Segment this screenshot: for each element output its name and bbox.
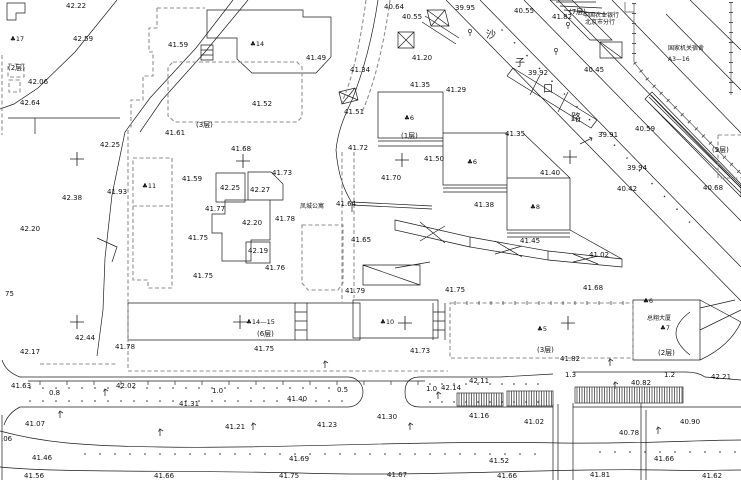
elevation-label: 40.45 — [584, 66, 604, 74]
tree-dot — [309, 453, 311, 455]
tree-dot — [414, 453, 416, 455]
tree-dot — [302, 387, 304, 389]
lamp-post-icon — [609, 359, 614, 366]
elevation-label: 41.62 — [702, 472, 722, 480]
elevation-label: 40.64 — [384, 3, 405, 11]
elevation-label: 41.68 — [231, 145, 251, 153]
elevation-label: 41.75 — [254, 345, 274, 353]
place-name-label: 北京市分行 — [585, 18, 615, 26]
tree-dot — [237, 400, 239, 402]
elevation-label: 40.68 — [703, 184, 723, 192]
tree-dot — [513, 383, 515, 385]
elevation-label: 41.66 — [654, 455, 675, 463]
place-name-label: 凤城公寓 — [300, 202, 324, 210]
elevation-label: 41.40 — [287, 395, 307, 403]
elevation-label: 41.73 — [272, 169, 292, 177]
floor-count-label: (2层) — [658, 349, 675, 357]
terrace-ramps — [352, 202, 622, 285]
tree-dot — [55, 400, 57, 402]
tree-dot — [689, 221, 691, 223]
place-name-label: A3—16 — [668, 56, 690, 63]
tree-dot — [689, 451, 691, 453]
elevation-label: 41.49 — [306, 54, 326, 62]
building-number-label: ♣14—15 — [246, 318, 275, 326]
tree-dot — [189, 453, 191, 455]
building-number-label: ♣6 — [404, 114, 414, 122]
tree-dot — [328, 387, 330, 389]
elevation-label: 42.21 — [711, 373, 731, 381]
tree-dot — [664, 196, 666, 198]
elevation-label: 41.45 — [520, 237, 540, 245]
elevation-label: 41.70 — [381, 174, 401, 182]
tree-dot — [198, 387, 200, 389]
elevation-label: 41.65 — [351, 236, 371, 244]
north-buildings — [7, 3, 331, 73]
elevation-label: 41.66 — [497, 472, 518, 480]
elevation-label: 40.78 — [619, 429, 639, 437]
survey-cross-mark — [233, 315, 247, 329]
site-plan-drawing: 42.2242.5942.0642.6441.5941.4940.6440.55… — [0, 0, 741, 480]
tree-dot — [504, 453, 506, 455]
tree-dot — [146, 387, 148, 389]
lamp-post-icon — [657, 427, 662, 434]
survey-cross-mark — [395, 153, 409, 167]
shrub-icon — [554, 48, 557, 51]
elevation-label: 41.72 — [348, 144, 368, 152]
tree-dot — [489, 401, 491, 403]
road-width-label: 1.2 — [664, 371, 675, 379]
elevation-label: 41.61 — [165, 129, 185, 137]
tree-dot — [219, 453, 221, 455]
elevation-label: 41.78 — [275, 215, 295, 223]
tree-dot — [324, 453, 326, 455]
elevation-label: 42.11 — [469, 377, 489, 385]
elevation-label: 41.21 — [225, 423, 245, 431]
tree-dot — [576, 106, 578, 108]
floor-count-label: (6层) — [257, 330, 274, 338]
elevation-label: 42.17 — [20, 348, 40, 356]
elevation-label: 41.40 — [540, 169, 560, 177]
lamp-post-icon — [324, 361, 329, 368]
place-name-label: 中国农业银行 — [583, 11, 619, 19]
elevation-label: 42.19 — [248, 247, 268, 255]
elevation-label: 41.35 — [410, 81, 430, 89]
road-name-char: 路 — [571, 111, 581, 124]
elevation-label: 41.76 — [265, 264, 286, 272]
elevation-label: 41.73 — [410, 347, 430, 355]
elevation-label: 41.38 — [474, 201, 494, 209]
tree-dot — [341, 400, 343, 402]
elevation-label: 42.38 — [62, 194, 82, 202]
tree-dot — [81, 387, 83, 389]
tree-dot — [704, 451, 706, 453]
building-number-label: ♣17 — [10, 35, 24, 43]
tree-dot — [174, 453, 176, 455]
tree-dot — [674, 451, 676, 453]
tree-dot — [68, 387, 70, 389]
tree-dot — [328, 400, 330, 402]
lamp-post-icon — [437, 392, 442, 399]
floor-count-label: (3层) — [537, 346, 554, 354]
elevation-label: 41.82 — [560, 355, 580, 363]
elevation-label: 41.63 — [11, 382, 31, 390]
tree-dot — [429, 453, 431, 455]
elevation-label: 41.81 — [590, 471, 610, 479]
elevation-label: 41.75 — [193, 272, 213, 280]
tree-dot — [234, 453, 236, 455]
tree-dot — [264, 453, 266, 455]
elevation-label: 41.79 — [345, 287, 365, 295]
shrub-icon — [468, 29, 471, 32]
tree-dot — [99, 453, 101, 455]
elevation-label: 41.35 — [505, 130, 525, 138]
tree-dot — [94, 387, 96, 389]
road-name-char: 口 — [543, 84, 553, 95]
elevation-label: 42.02 — [116, 382, 136, 390]
tree-dot — [159, 453, 161, 455]
tree-dot — [249, 453, 251, 455]
elevation-label: 41.64 — [336, 200, 357, 208]
elevation-label: 39.91 — [598, 131, 618, 139]
tree-dot — [513, 401, 515, 403]
tree-dot — [614, 451, 616, 453]
elevation-label: .06 — [1, 435, 13, 443]
tree-dot — [429, 401, 431, 403]
lamp-post-icon — [409, 423, 414, 430]
elevation-label: 40.55 — [402, 13, 422, 21]
tree-dot — [120, 400, 122, 402]
tree-dot — [211, 400, 213, 402]
tree-dot — [644, 451, 646, 453]
floor-count-label: (2层) — [8, 64, 25, 72]
elevation-label: 42.44 — [75, 334, 96, 342]
road-median-band — [645, 92, 741, 197]
elevation-label: 41.07 — [25, 420, 45, 428]
elevation-label: 42.22 — [66, 2, 86, 10]
tree-dot — [474, 453, 476, 455]
elevation-label: 75 — [5, 290, 14, 298]
tree-dot — [384, 453, 386, 455]
tree-dot — [525, 401, 527, 403]
elevation-label: 40.55 — [514, 7, 534, 15]
tree-dot — [42, 387, 44, 389]
road-width-label: 1.0 — [212, 387, 223, 395]
tree-dot — [453, 401, 455, 403]
tree-dot — [369, 453, 371, 455]
tree-dot — [224, 400, 226, 402]
road-width-label: 1.3 — [565, 371, 576, 379]
building-number-label: ♣5 — [537, 325, 547, 333]
road-name-char: 子 — [515, 57, 525, 69]
tree-dot — [159, 400, 161, 402]
road-width-label: 0.5 — [337, 386, 348, 394]
survey-cross-mark — [561, 316, 575, 330]
tree-dot — [185, 387, 187, 389]
survey-cross-mark — [70, 152, 84, 166]
tree-dot — [159, 387, 161, 389]
road-width-label: 0.8 — [49, 389, 60, 397]
building-number-label: ♣11 — [142, 182, 156, 190]
tree-dot — [526, 55, 528, 57]
tree-dot — [172, 387, 174, 389]
elevation-label: 41.20 — [412, 54, 432, 62]
tree-dot — [81, 400, 83, 402]
tree-dot — [114, 453, 116, 455]
elevation-label: 41.67 — [387, 471, 407, 479]
tree-dot — [107, 387, 109, 389]
tree-dot — [399, 453, 401, 455]
elevation-label: 41.59 — [182, 175, 202, 183]
elevation-label: 41.46 — [32, 454, 53, 462]
tree-dot — [441, 401, 443, 403]
elevation-label: 41.34 — [350, 66, 371, 74]
building-number-label: ♣7 — [660, 324, 670, 332]
elevation-label: 39.95 — [455, 4, 475, 12]
survey-cross-mark — [70, 315, 84, 329]
road-width-label: 1.0 — [426, 385, 437, 393]
elevation-label: 41.31 — [179, 400, 199, 408]
tree-dot — [734, 451, 736, 453]
tree-dot — [599, 451, 601, 453]
elevation-label: 41.78 — [115, 343, 135, 351]
tree-dot — [514, 42, 516, 44]
tower-building-7 — [633, 300, 741, 360]
tree-dot — [589, 119, 591, 121]
tree-dot — [629, 451, 631, 453]
elevation-label: 41.75 — [279, 472, 299, 480]
south-row-buildings — [128, 300, 445, 340]
floor-count-label: (3层) — [196, 121, 213, 129]
building-number-label: ♣10 — [380, 318, 394, 326]
elevation-label: 41.51 — [344, 108, 364, 116]
tree-dot — [129, 453, 131, 455]
label-layer: 42.2242.5942.0642.6441.5941.4940.6440.55… — [1, 2, 731, 480]
tree-dot — [537, 383, 539, 385]
elevation-label: 40.59 — [635, 125, 655, 133]
tree-dot — [519, 453, 521, 455]
tree-dot — [315, 387, 317, 389]
tree-dot — [276, 387, 278, 389]
tree-dot — [525, 383, 527, 385]
elevation-label: 41.68 — [583, 284, 603, 292]
shrub-icon — [566, 22, 569, 25]
elevation-label: 42.27 — [250, 186, 270, 194]
building-number-label: ♣14 — [250, 40, 264, 48]
road-name-char: 沙 — [486, 29, 496, 41]
survey-cross-mark — [563, 150, 577, 164]
tree-dot — [289, 387, 291, 389]
building-number-label: ♣6 — [467, 158, 477, 166]
floor-count-label: (5层) — [712, 146, 729, 154]
tree-dot — [651, 183, 653, 185]
elevation-label: 41.29 — [446, 86, 466, 94]
tree-dot — [29, 400, 31, 402]
tree-dot — [551, 80, 553, 82]
elevation-label: 41.69 — [289, 455, 309, 463]
elevation-label: 42.20 — [20, 225, 40, 233]
tree-dot — [133, 400, 135, 402]
tree-dot — [444, 453, 446, 455]
tree-dot — [354, 453, 356, 455]
tree-dot — [339, 453, 341, 455]
lamp-post-icon — [59, 411, 64, 418]
tree-dot — [501, 29, 503, 31]
tree-dot — [534, 453, 536, 455]
elevation-label: 41.50 — [424, 155, 444, 163]
elevation-label: 41.16 — [469, 412, 490, 420]
lamp-post-icon — [159, 429, 164, 436]
tree-dot — [94, 400, 96, 402]
tree-dot — [501, 401, 503, 403]
elevation-label: 41.59 — [168, 41, 188, 49]
building-number-label: ♣8 — [530, 203, 540, 211]
tree-dot — [224, 387, 226, 389]
tree-dot — [263, 387, 265, 389]
south-road-edges — [0, 360, 741, 480]
tree-dot — [659, 451, 661, 453]
elevation-label: 41.23 — [317, 421, 337, 429]
lamp-post-icon — [104, 389, 109, 396]
survey-cross-mark — [398, 316, 412, 330]
place-name-label: 总翔大厦 — [647, 314, 671, 322]
tree-dot — [279, 453, 281, 455]
tree-dot — [477, 401, 479, 403]
tree-dot — [250, 387, 252, 389]
site-plan-canvas: 42.2242.5942.0642.6441.5941.4940.6440.55… — [0, 0, 741, 480]
tree-dot — [489, 453, 491, 455]
tree-dot — [315, 400, 317, 402]
elevation-label: 41.30 — [377, 413, 397, 421]
elevation-label: 41.66 — [154, 472, 175, 480]
tree-dot — [250, 400, 252, 402]
tree-dot — [501, 383, 503, 385]
tree-dot — [172, 400, 174, 402]
elevation-label: 40.82 — [631, 379, 651, 387]
elevation-label: 42.25 — [220, 184, 240, 192]
tree-dot — [626, 157, 628, 159]
tree-dot — [465, 383, 467, 385]
left-street-lines — [0, 0, 248, 356]
elevation-label: 41.75 — [188, 234, 208, 242]
tree-dot — [68, 400, 70, 402]
elevation-label: 42.06 — [28, 78, 49, 86]
elevation-label: 39.92 — [528, 69, 548, 77]
tree-dot — [719, 451, 721, 453]
tree-dot — [465, 401, 467, 403]
elevation-label: 41.52 — [252, 100, 272, 108]
elevation-label: 42.59 — [73, 35, 93, 43]
elevation-label: 41.93 — [107, 188, 127, 196]
elevation-label: 42.64 — [20, 99, 41, 107]
elevation-label: 41.52 — [489, 457, 509, 465]
tree-dot — [237, 387, 239, 389]
survey-cross-mark — [236, 154, 250, 168]
tree-dot — [676, 208, 678, 210]
tree-dot — [263, 400, 265, 402]
tree-dot — [564, 93, 566, 95]
floor-count-label: (1层) — [401, 132, 418, 140]
elevation-label: 41.02 — [524, 418, 544, 426]
elevation-label: 42.20 — [242, 219, 262, 227]
elevation-label: 42.25 — [100, 141, 120, 149]
tree-dot — [489, 383, 491, 385]
place-name-label: 国家机关宿舍 — [668, 44, 704, 52]
tree-dot — [614, 144, 616, 146]
tree-dot — [537, 401, 539, 403]
tree-dot — [84, 453, 86, 455]
tree-dot — [459, 453, 461, 455]
lamp-post-icon — [252, 423, 257, 430]
tree-dot — [107, 400, 109, 402]
elevation-label: 41.77 — [205, 205, 225, 213]
elevation-label: 39.94 — [627, 164, 648, 172]
elevation-label: 40.90 — [680, 418, 700, 426]
tree-dot — [204, 453, 206, 455]
building-number-label: ♣6 — [643, 297, 653, 305]
elevation-label: 41.02 — [589, 251, 609, 259]
elevation-label: 41.75 — [445, 286, 465, 294]
elevation-label: 40.42 — [617, 185, 637, 193]
tree-dot — [276, 400, 278, 402]
tree-dot — [144, 453, 146, 455]
tree-dot — [42, 400, 44, 402]
elevation-label: 42.14 — [441, 384, 462, 392]
tree-dot — [146, 400, 148, 402]
elevation-label: 41.56 — [24, 472, 45, 480]
